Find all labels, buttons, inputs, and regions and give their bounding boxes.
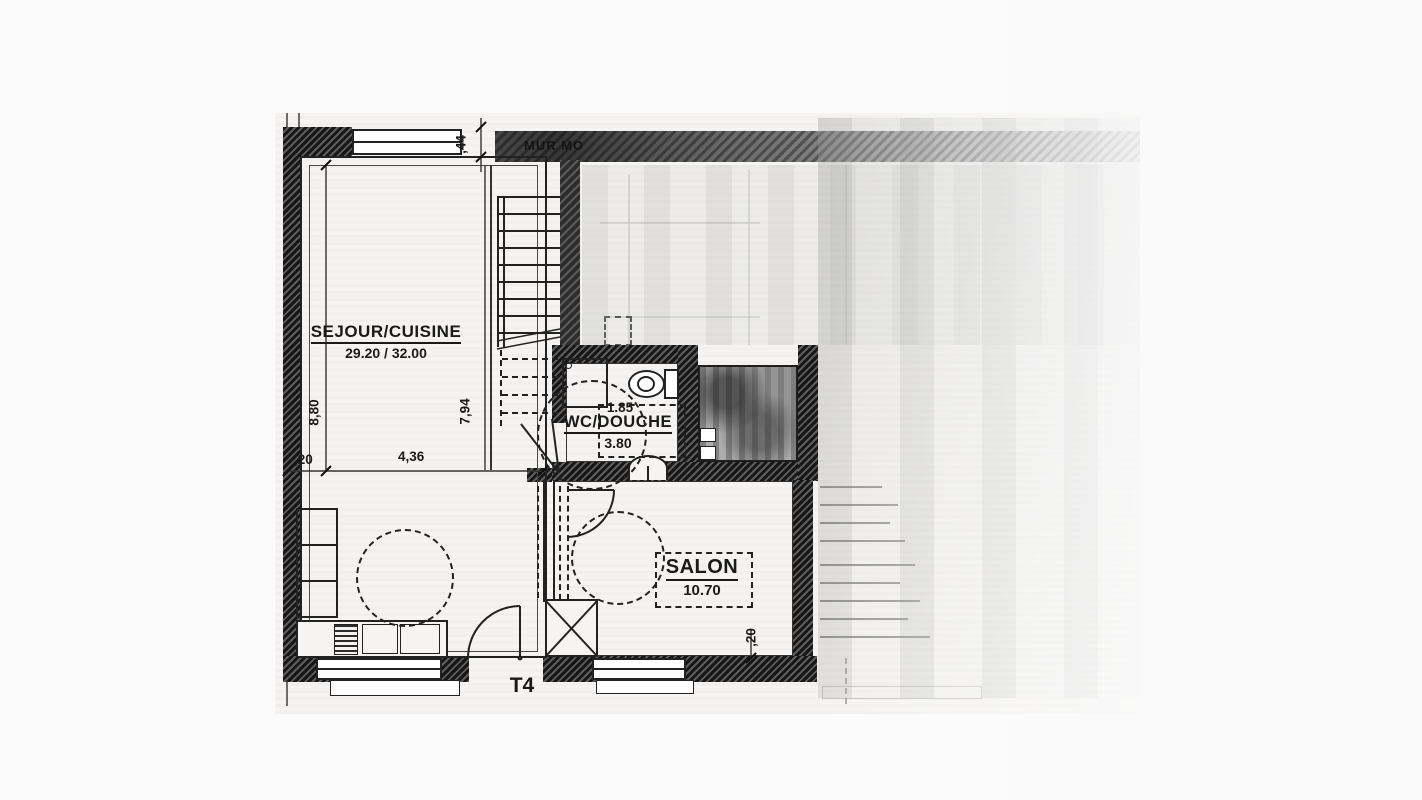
party-wall-label: MUR MO: [524, 138, 584, 153]
dim-salon-wall: ,20: [744, 618, 759, 658]
scan-white-fade: [760, 0, 1422, 800]
duct-x-brace: [546, 601, 597, 656]
wc-room-area: 3.80: [550, 435, 686, 451]
floorplan-canvas: SEJOUR/CUISINE 29.20 / 32.00 1.85 WC/DOU…: [0, 0, 1422, 800]
wc-room-name: WC/DOUCHE: [550, 413, 686, 432]
sejour-room-area: 29.20 / 32.00: [288, 345, 484, 361]
dim-top-offset: ,44: [454, 125, 469, 165]
salon-room-area: 10.70: [650, 582, 754, 599]
unit-type-label: T4: [494, 674, 550, 698]
dim-stair-depth: 7,94: [458, 392, 473, 432]
stair-cut-line: [497, 329, 560, 349]
entrance-door-swing: [468, 606, 523, 661]
salon-room-label: SALON 10.70: [650, 556, 754, 599]
sejour-room-label: SEJOUR/CUISINE 29.20 / 32.00: [288, 322, 484, 361]
wc-room-label: WC/DOUCHE 3.80: [550, 413, 686, 451]
sejour-room-name: SEJOUR/CUISINE: [288, 322, 484, 342]
salon-room-name: SALON: [650, 556, 754, 579]
dim-wall-thickness: ,20: [294, 452, 328, 467]
salon-door-swing: [567, 490, 614, 537]
dim-sejour-width: 4,36: [398, 449, 444, 464]
dim-sejour-height: 8,80: [307, 393, 322, 433]
